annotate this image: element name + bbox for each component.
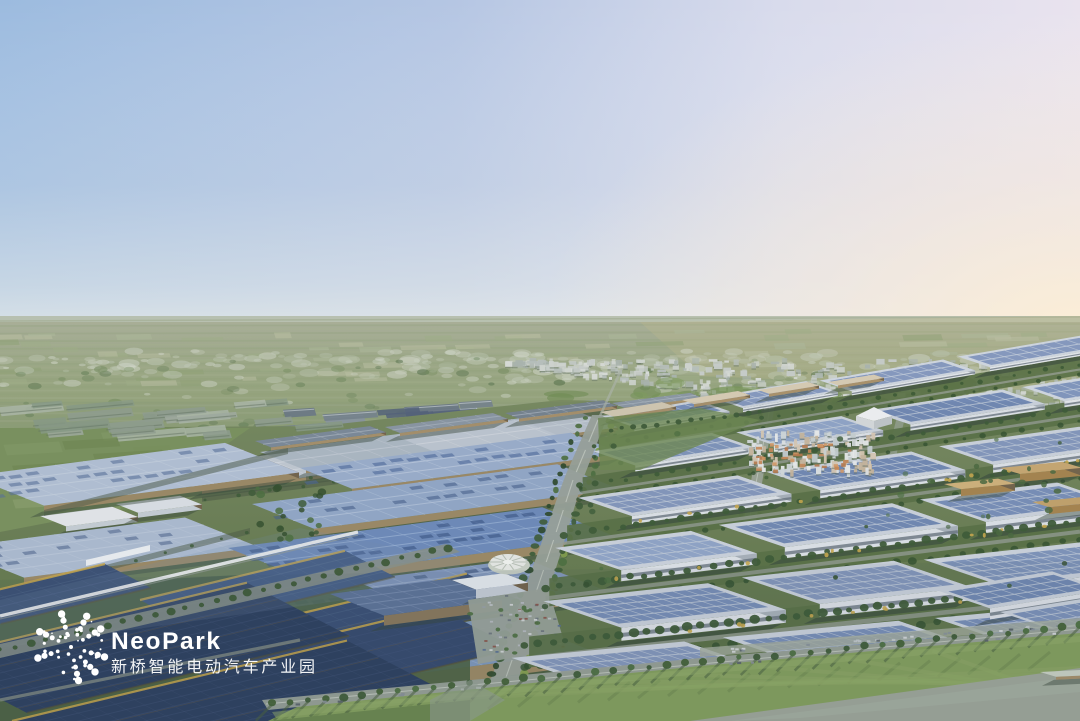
svg-text:新桥智能电动汽车产业园: 新桥智能电动汽车产业园 bbox=[111, 658, 318, 676]
svg-text:NeoPark: NeoPark bbox=[111, 628, 222, 655]
